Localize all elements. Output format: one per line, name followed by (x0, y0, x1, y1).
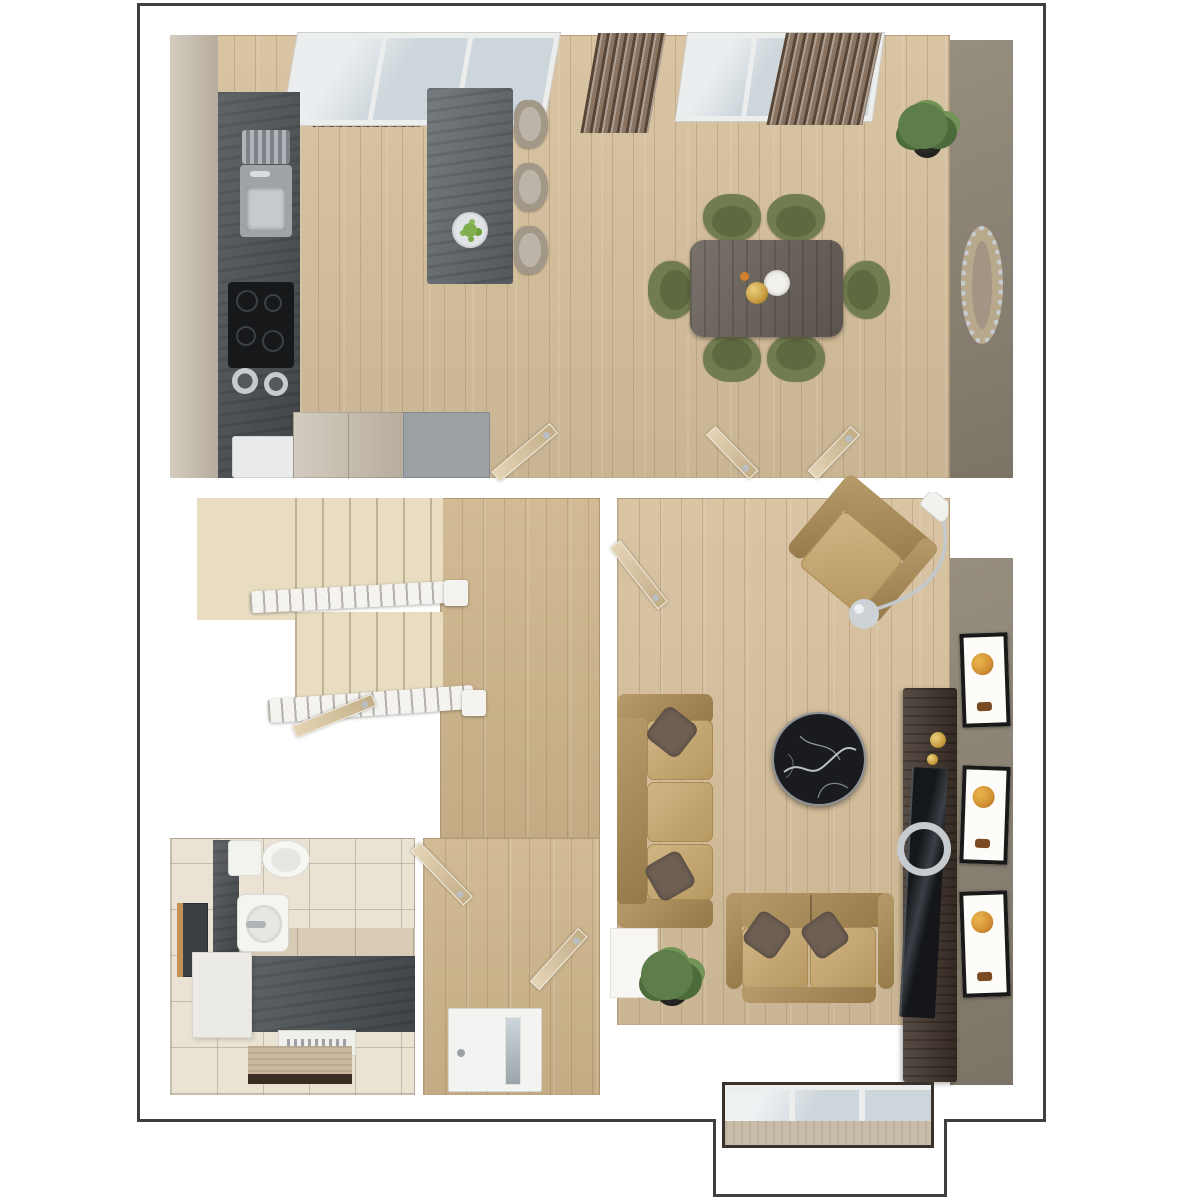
bar-stool (514, 163, 548, 211)
loveseat-armrest (878, 893, 894, 989)
sofa-back (617, 718, 647, 904)
picture-frame (959, 890, 1011, 998)
gold-vase (746, 282, 768, 304)
bay-window (722, 1082, 934, 1148)
towel-rail (177, 903, 183, 977)
bay-window-glass (725, 1085, 931, 1121)
orange-fruit (740, 272, 749, 281)
dining-chair (767, 334, 825, 382)
potted-plant (641, 950, 693, 1000)
potted-plant (898, 103, 948, 149)
base-cabinets (293, 412, 403, 478)
tall-cabinets (170, 35, 218, 478)
drainer (242, 130, 290, 164)
appliance-white (232, 436, 300, 478)
saucepan (232, 368, 258, 394)
toilet-bowl (262, 840, 310, 878)
stair-flight-upper (295, 498, 443, 595)
toilet-cistern (228, 840, 262, 876)
loveseat-armrest (726, 893, 742, 989)
dining-chair (703, 334, 761, 382)
basin (237, 894, 289, 952)
bay-window-sill (725, 1121, 931, 1145)
loveseat-front (742, 987, 876, 1003)
bar-stool (514, 100, 548, 148)
marble-coffee-table (772, 712, 866, 806)
dining-chair (767, 194, 825, 242)
dining-chair (648, 261, 696, 319)
bath-front-panel (239, 956, 415, 1032)
storage-box (192, 952, 252, 1038)
arc-floor-lamp (828, 492, 948, 642)
dining-chair (703, 194, 761, 242)
front-door (448, 1008, 542, 1092)
sink (240, 165, 292, 237)
hall-floor (440, 498, 600, 838)
hob (228, 282, 294, 368)
console-knob (927, 754, 938, 765)
kitchen-island (427, 88, 513, 284)
sofa-seat-cushion (647, 782, 713, 842)
appliance-gray (403, 412, 490, 478)
oval-mirror (961, 226, 1003, 344)
floor-plan (0, 0, 1200, 1200)
picture-frame (959, 765, 1010, 865)
curtain-panel (766, 33, 882, 125)
dining-chair (842, 261, 890, 319)
newel-post (462, 690, 486, 716)
saucepan (264, 372, 288, 396)
console-knob (930, 732, 946, 748)
newel-post (444, 580, 468, 606)
tv-stand-ring (897, 822, 951, 876)
bar-stool (514, 226, 548, 274)
bath-mat (248, 1046, 352, 1084)
fruit-bowl (452, 212, 488, 248)
picture-frame (959, 632, 1010, 728)
